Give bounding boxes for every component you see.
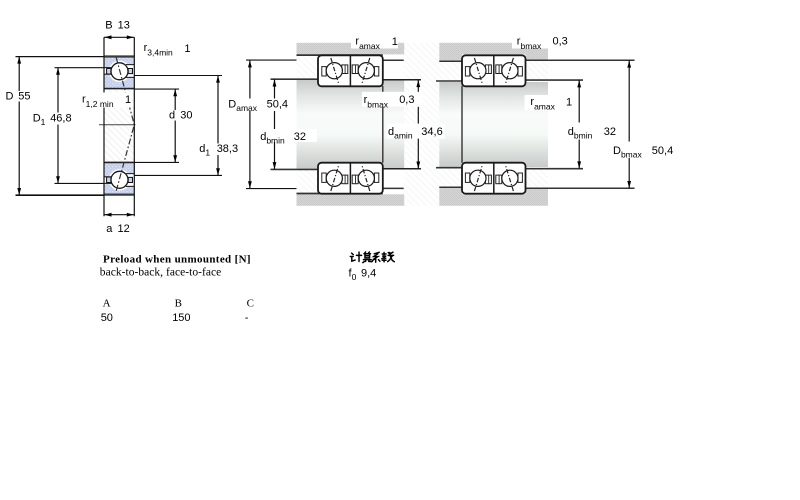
- svg-text:13: 13: [118, 20, 130, 32]
- svg-text:A: A: [103, 297, 111, 309]
- svg-text:38,3: 38,3: [217, 143, 238, 155]
- svg-text:50,4: 50,4: [652, 145, 673, 157]
- svg-text:D: D: [6, 91, 14, 103]
- svg-text:30: 30: [180, 110, 192, 122]
- svg-text:1: 1: [392, 36, 398, 48]
- svg-text:32: 32: [604, 126, 616, 138]
- svg-text:1: 1: [125, 94, 131, 106]
- svg-text:9,4: 9,4: [361, 268, 376, 280]
- svg-text:0,3: 0,3: [399, 94, 414, 106]
- svg-text:12: 12: [118, 223, 130, 235]
- svg-text:50,4: 50,4: [267, 99, 288, 111]
- svg-text:1: 1: [566, 96, 572, 108]
- svg-text:B: B: [175, 297, 182, 309]
- svg-text:C: C: [247, 297, 254, 309]
- svg-text:d: d: [169, 110, 175, 122]
- svg-text:50: 50: [101, 312, 113, 324]
- svg-text:150: 150: [172, 312, 190, 324]
- svg-text:34,6: 34,6: [421, 126, 442, 138]
- svg-text:55: 55: [18, 91, 30, 103]
- svg-text:32: 32: [294, 131, 306, 143]
- svg-text:a: a: [106, 223, 113, 235]
- svg-text:back-to-back, face-to-face: back-to-back, face-to-face: [100, 267, 221, 279]
- svg-text:B: B: [105, 20, 112, 32]
- svg-text:f0: f0: [349, 268, 357, 283]
- svg-text:1: 1: [184, 43, 190, 55]
- svg-text:0,3: 0,3: [553, 35, 568, 47]
- svg-text:Preload when unmounted [N]: Preload when unmounted [N]: [103, 253, 251, 265]
- svg-text:-: -: [245, 312, 249, 324]
- svg-text:46,8: 46,8: [50, 112, 71, 124]
